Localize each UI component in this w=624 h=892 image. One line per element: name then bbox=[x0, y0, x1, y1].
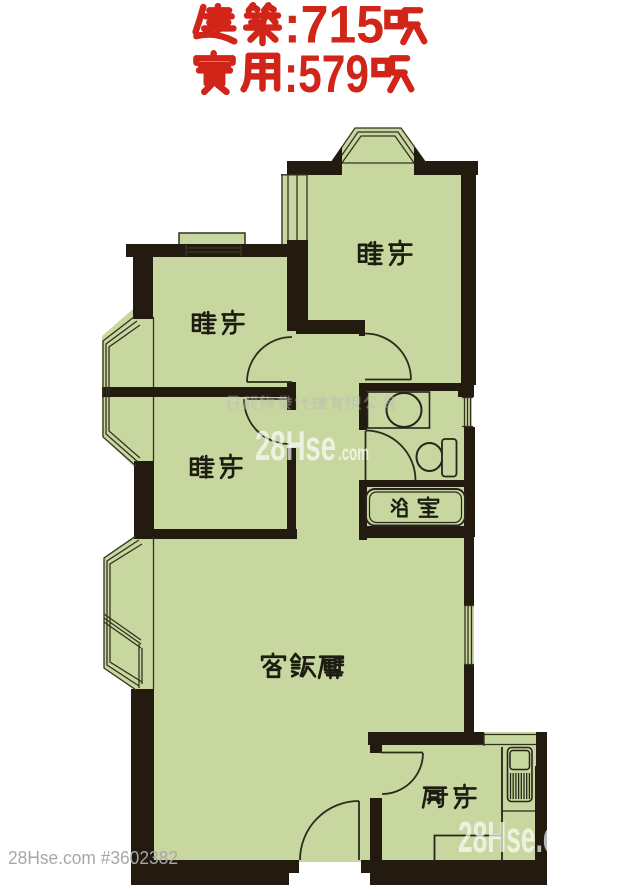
svg-text:28Hse: 28Hse bbox=[255, 422, 336, 469]
svg-text:28Hse.com: 28Hse.com bbox=[458, 813, 597, 862]
svg-text:28Hse.com #3602382: 28Hse.com #3602382 bbox=[8, 847, 178, 868]
svg-text::579: :579 bbox=[284, 45, 369, 104]
svg-text:.com: .com bbox=[338, 442, 369, 465]
